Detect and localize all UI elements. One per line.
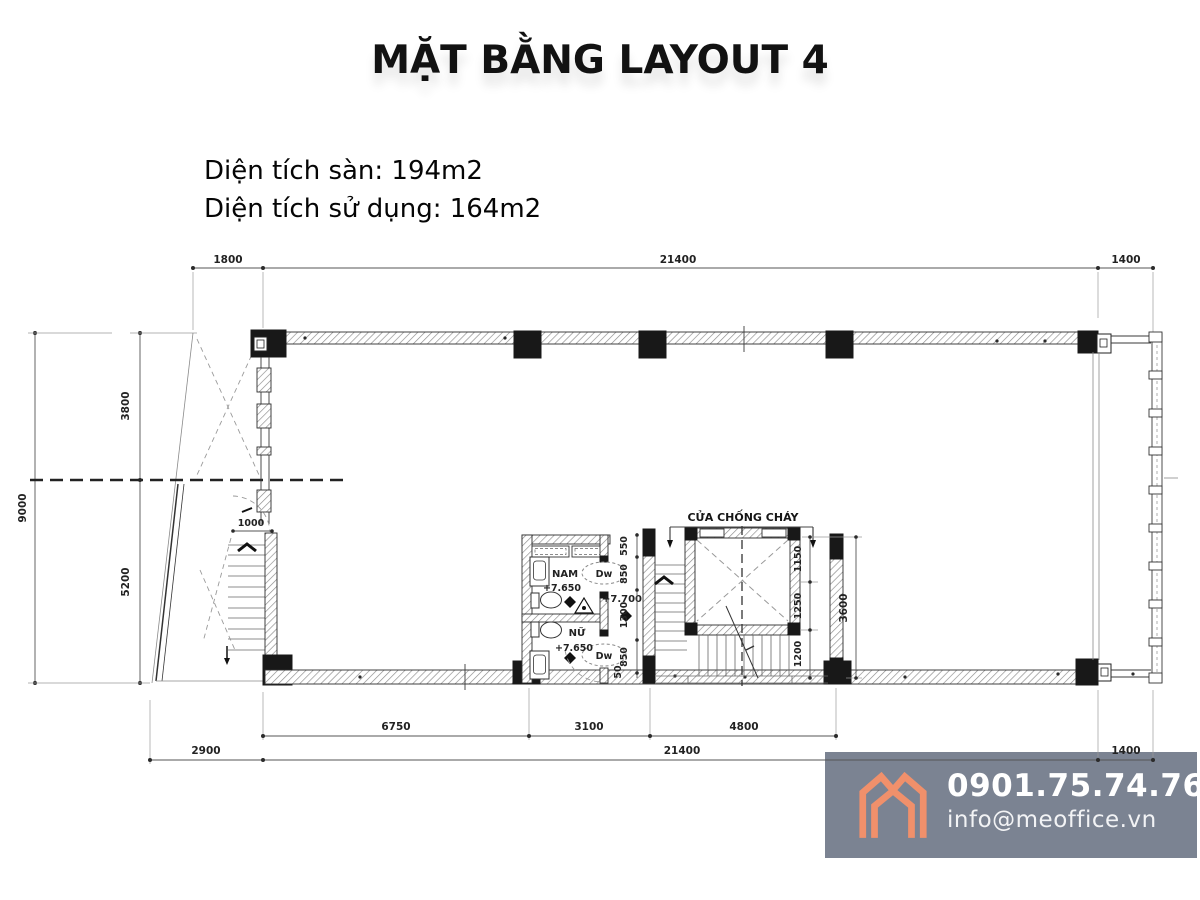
bottom-wall <box>265 659 1151 690</box>
mid-staircase <box>643 529 828 683</box>
elevator-shaft <box>685 526 843 686</box>
wc-dim-chain: 550 850 1300 850 50 <box>613 533 639 679</box>
top-wall <box>251 326 1151 358</box>
label-nu: NỮ <box>569 626 586 639</box>
dim-wc-850a: 850 <box>619 564 630 584</box>
email-address: info@meoffice.vn <box>947 805 1200 835</box>
lot-boundary <box>30 333 350 683</box>
dim-bottom-21400: 21400 <box>664 745 701 757</box>
left-front-wall <box>233 357 271 532</box>
page-title: MẶT BẰNG LAYOUT 4 <box>0 38 1200 83</box>
label-nu-level: +7.650 <box>555 643 593 654</box>
phone-number: 0901.75.74.76 <box>947 768 1200 805</box>
dims-top: 1800 21400 1400 <box>191 254 1155 340</box>
elevator-dim-chains: 1150 1250 1200 3600 <box>793 535 862 680</box>
dim-top-1400: 1400 <box>1111 254 1140 266</box>
dim-lift-1200: 1200 <box>793 640 804 667</box>
meoffice-logo-icon <box>851 764 935 848</box>
dim-stair-1000: 1000 <box>238 518 265 529</box>
dims-left: 9000 3800 5200 <box>17 331 197 685</box>
dim-left-3800: 3800 <box>120 391 132 420</box>
dim-bottom-2900: 2900 <box>191 745 220 757</box>
brand-footer: 0901.75.74.76 info@meoffice.vn <box>825 752 1197 858</box>
label-door-nam: Dw <box>596 569 613 580</box>
dim-bottom-4800: 4800 <box>729 721 758 733</box>
label-nam-level: +7.650 <box>543 583 581 594</box>
dim-wc-550: 550 <box>619 536 630 556</box>
dim-lift-3600: 3600 <box>838 593 850 622</box>
area-info: Diện tích sàn: 194m2 Diện tích sử dụng: … <box>204 152 541 228</box>
label-fire-door: CỬA CHỐNG CHÁY <box>687 509 799 524</box>
label-door-nu: Dw <box>596 651 613 662</box>
wc-block: NAM +7.650 NỮ +7.650 Dw Dw +7.700 <box>522 535 642 683</box>
dim-wc-850b: 850 <box>619 647 630 667</box>
contact-block: 0901.75.74.76 info@meoffice.vn <box>947 768 1200 835</box>
dim-top-1800: 1800 <box>213 254 242 266</box>
left-staircase: 1000 <box>200 518 292 685</box>
label-nam: NAM <box>552 569 578 580</box>
dim-bottom-6750: 6750 <box>381 721 410 733</box>
usable-area-text: Diện tích sử dụng: 164m2 <box>204 190 541 228</box>
dim-bottom-3100: 3100 <box>574 721 603 733</box>
right-facade-wall <box>1093 332 1178 683</box>
dim-wc-50: 50 <box>613 665 624 679</box>
dim-left-5200: 5200 <box>120 567 132 596</box>
floor-plan: 1800 21400 1400 9000 3800 5200 6750 3100… <box>0 230 1200 780</box>
fire-door-callout: CỬA CHỐNG CHÁY <box>667 509 816 548</box>
dim-wc-1300: 1300 <box>619 601 630 628</box>
dim-left-9000: 9000 <box>17 493 29 522</box>
label-hall-level: +7.700 <box>602 594 642 605</box>
floor-area-text: Diện tích sàn: 194m2 <box>204 152 541 190</box>
dim-top-21400: 21400 <box>660 254 697 266</box>
dim-lift-1150: 1150 <box>793 545 804 572</box>
dim-lift-1250: 1250 <box>793 592 804 619</box>
